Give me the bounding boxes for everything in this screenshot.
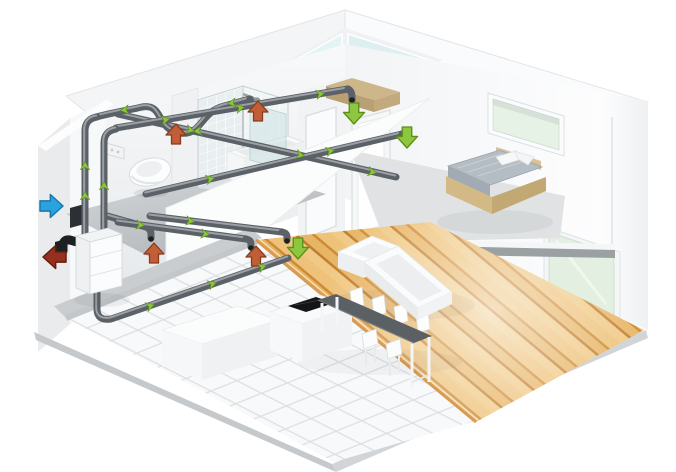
terminal-cap-utility [148, 236, 154, 242]
terminal-cap-bedroom [349, 97, 355, 103]
unit-front [76, 236, 90, 294]
ventilation-cutaway-illustration [0, 0, 676, 472]
terminal-cap-living [284, 238, 290, 244]
unit-side [90, 234, 122, 294]
